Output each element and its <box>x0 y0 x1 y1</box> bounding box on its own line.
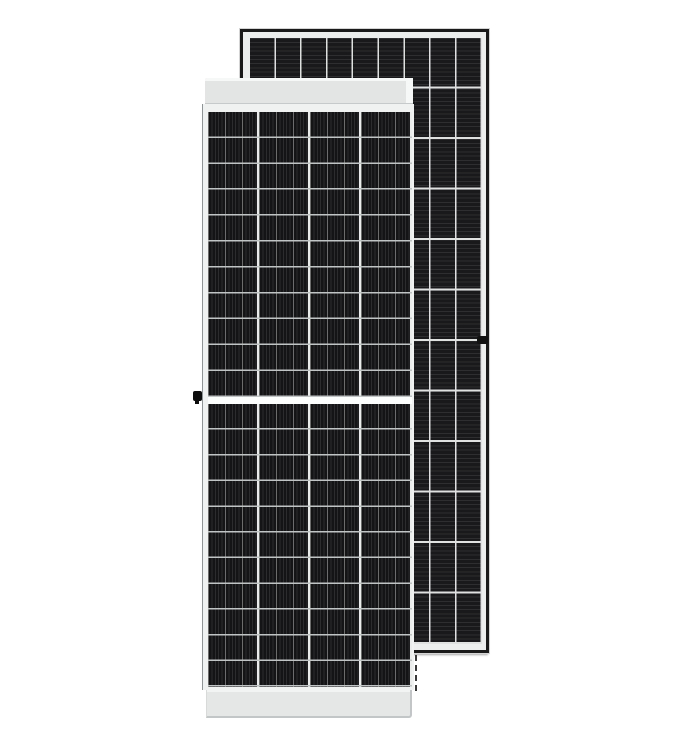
front-panel-top-frame-band <box>205 78 413 104</box>
front-frame-hidden-edge <box>415 655 417 691</box>
solar-panel-product-photo <box>0 0 684 748</box>
front-panel-lower-cell-grid <box>208 404 412 687</box>
front-panel-bottom-frame-band <box>206 690 412 718</box>
front-panel-mid-split-gap <box>208 397 412 404</box>
front-solar-panel <box>202 78 414 718</box>
left-mid-frame-clip-nub <box>195 400 199 404</box>
right-mid-frame-clip <box>477 336 488 344</box>
front-panel-upper-cell-grid <box>208 112 412 397</box>
left-mid-frame-clip <box>193 391 202 401</box>
